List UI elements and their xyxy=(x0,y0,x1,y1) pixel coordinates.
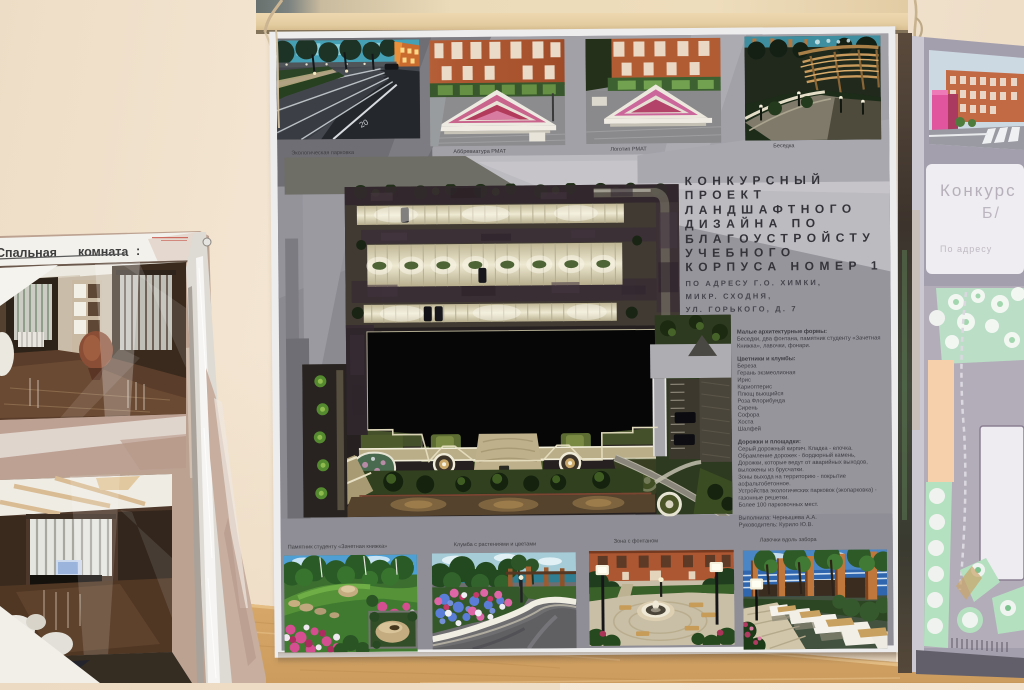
svg-text:Б/: Б/ xyxy=(982,205,1001,222)
svg-text:Конкурс: Конкурс xyxy=(940,181,1017,200)
svg-text:комната: комната xyxy=(78,245,129,259)
svg-text:По адресу: По адресу xyxy=(940,244,992,254)
svg-text::: : xyxy=(136,244,140,258)
